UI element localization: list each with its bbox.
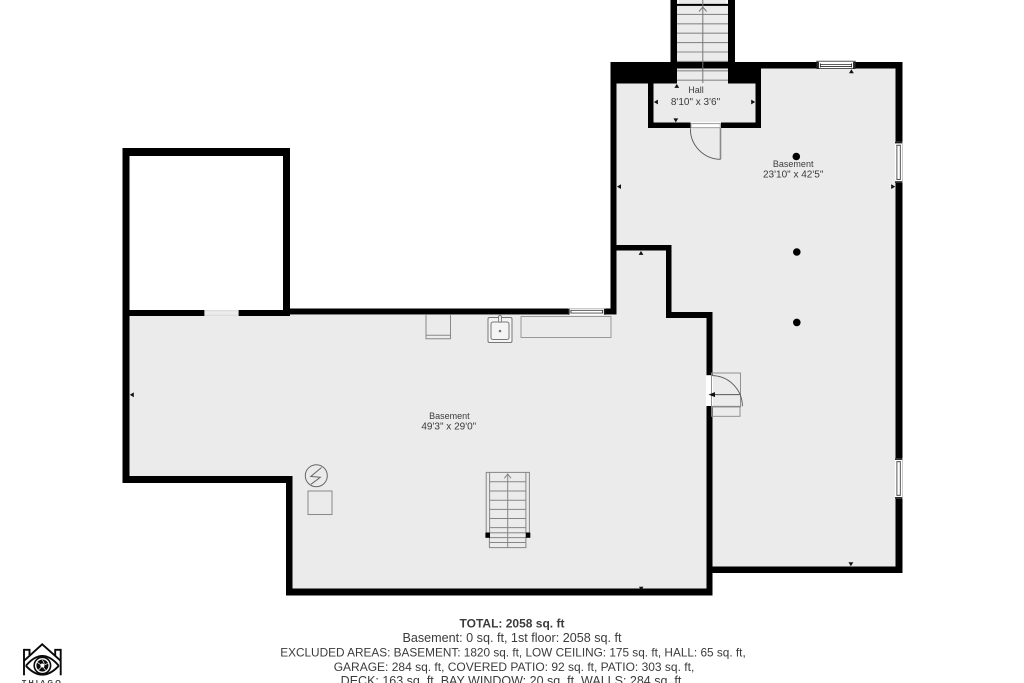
- svg-text:TOTAL: 2058 sq. ft: TOTAL: 2058 sq. ft: [460, 616, 565, 630]
- svg-text:49'3" x 29'0": 49'3" x 29'0": [421, 421, 476, 432]
- svg-text:23'10" x 42'5": 23'10" x 42'5": [763, 170, 824, 181]
- svg-text:Basement: Basement: [773, 159, 814, 169]
- svg-text:Basement: Basement: [429, 411, 470, 421]
- svg-text:8'10" x 3'6": 8'10" x 3'6": [671, 97, 721, 108]
- svg-text:DECK: 163 sq. ft, BAY WINDOW:: DECK: 163 sq. ft, BAY WINDOW: 20 sq. ft,…: [341, 674, 682, 683]
- svg-text:GARAGE: 284 sq. ft, COVERED PA: GARAGE: 284 sq. ft, COVERED PATIO: 92 sq…: [334, 660, 695, 674]
- svg-text:Basement: 0 sq. ft, 1st floor:: Basement: 0 sq. ft, 1st floor: 2058 sq. …: [402, 631, 622, 645]
- svg-text:Hall: Hall: [688, 85, 704, 95]
- svg-text:EXCLUDED AREAS: BASEMENT: 1820: EXCLUDED AREAS: BASEMENT: 1820 sq. ft, L…: [280, 645, 746, 659]
- svg-text:THIAGO: THIAGO: [22, 678, 63, 683]
